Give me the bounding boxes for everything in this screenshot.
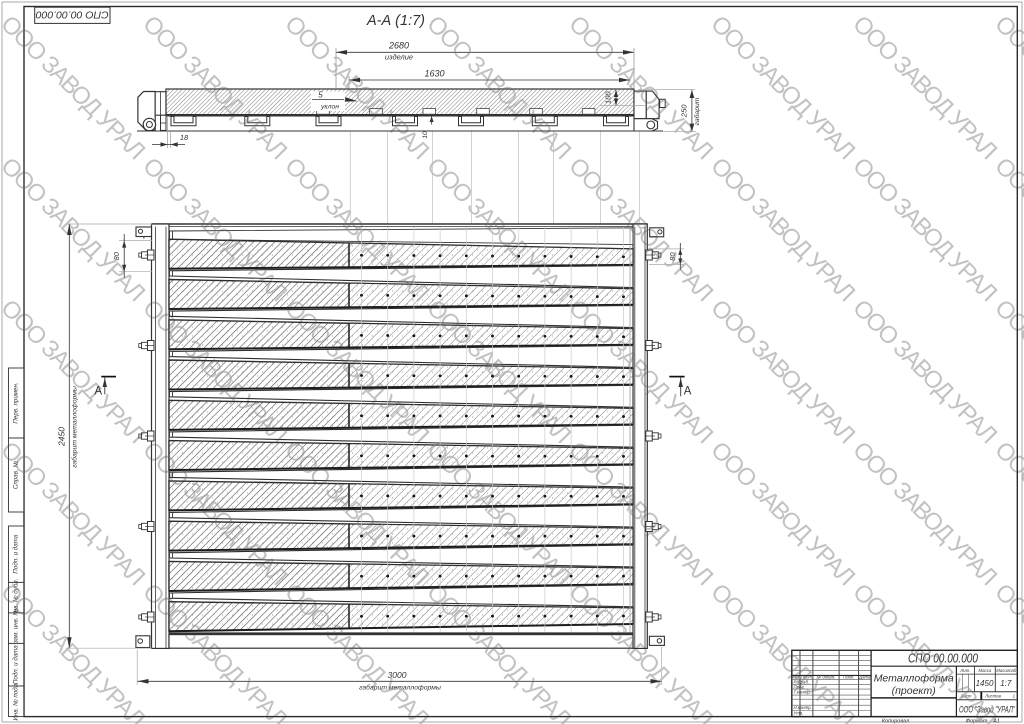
- svg-text:ООО ЗАВОД УРАЛ: ООО ЗАВОД УРАЛ: [421, 294, 575, 448]
- svg-text:ООО ЗАВОД УРАЛ: ООО ЗАВОД УРАЛ: [705, 152, 859, 306]
- svg-text:ООО ЗАВОД УРАЛ: ООО ЗАВОД УРАЛ: [421, 436, 575, 590]
- svg-text:ООО ЗАВОД УРАЛ: ООО ЗАВОД УРАЛ: [563, 152, 717, 306]
- svg-text:ООО ЗАВОД УРАЛ: ООО ЗАВОД УРАЛ: [137, 436, 291, 590]
- svg-text:ООО ЗАВОД УРАЛ: ООО ЗАВОД УРАЛ: [847, 152, 1001, 306]
- svg-text:ООО ЗАВОД УРАЛ: ООО ЗАВОД УРАЛ: [989, 720, 1024, 724]
- svg-text:ООО ЗАВОД УРАЛ: ООО ЗАВОД УРАЛ: [137, 10, 291, 164]
- svg-text:ООО ЗАВОД УРАЛ: ООО ЗАВОД УРАЛ: [279, 436, 433, 590]
- svg-text:ООО ЗАВОД УРАЛ: ООО ЗАВОД УРАЛ: [279, 578, 433, 724]
- svg-text:ООО ЗАВОД УРАЛ: ООО ЗАВОД УРАЛ: [705, 294, 859, 448]
- svg-text:ООО ЗАВОД УРАЛ: ООО ЗАВОД УРАЛ: [0, 578, 149, 724]
- svg-text:ООО ЗАВОД УРАЛ: ООО ЗАВОД УРАЛ: [279, 10, 433, 164]
- svg-text:ООО ЗАВОД УРАЛ: ООО ЗАВОД УРАЛ: [705, 10, 859, 164]
- svg-text:ООО ЗАВОД УРАЛ: ООО ЗАВОД УРАЛ: [0, 152, 149, 306]
- svg-text:ООО ЗАВОД УРАЛ: ООО ЗАВОД УРАЛ: [563, 436, 717, 590]
- svg-text:ООО ЗАВОД УРАЛ: ООО ЗАВОД УРАЛ: [137, 294, 291, 448]
- svg-text:ООО ЗАВОД УРАЛ: ООО ЗАВОД УРАЛ: [563, 578, 717, 724]
- svg-text:ООО ЗАВОД УРАЛ: ООО ЗАВОД УРАЛ: [989, 578, 1024, 724]
- svg-text:ООО ЗАВОД УРАЛ: ООО ЗАВОД УРАЛ: [279, 294, 433, 448]
- svg-text:ООО ЗАВОД УРАЛ: ООО ЗАВОД УРАЛ: [0, 436, 149, 590]
- svg-text:ООО ЗАВОД УРАЛ: ООО ЗАВОД УРАЛ: [847, 294, 1001, 448]
- svg-text:ООО ЗАВОД УРАЛ: ООО ЗАВОД УРАЛ: [0, 10, 149, 164]
- svg-text:ООО ЗАВОД УРАЛ: ООО ЗАВОД УРАЛ: [563, 10, 717, 164]
- svg-text:ООО ЗАВОД УРАЛ: ООО ЗАВОД УРАЛ: [421, 152, 575, 306]
- svg-text:ООО ЗАВОД УРАЛ: ООО ЗАВОД УРАЛ: [563, 294, 717, 448]
- svg-text:ООО ЗАВОД УРАЛ: ООО ЗАВОД УРАЛ: [137, 152, 291, 306]
- svg-text:ООО ЗАВОД УРАЛ: ООО ЗАВОД УРАЛ: [705, 578, 859, 724]
- svg-text:ООО ЗАВОД УРАЛ: ООО ЗАВОД УРАЛ: [847, 578, 1001, 724]
- svg-text:ООО ЗАВОД УРАЛ: ООО ЗАВОД УРАЛ: [279, 152, 433, 306]
- svg-text:ООО ЗАВОД УРАЛ: ООО ЗАВОД УРАЛ: [0, 294, 149, 448]
- svg-text:ООО ЗАВОД УРАЛ: ООО ЗАВОД УРАЛ: [705, 436, 859, 590]
- svg-text:ООО ЗАВОД УРАЛ: ООО ЗАВОД УРАЛ: [421, 10, 575, 164]
- svg-text:ООО ЗАВОД УРАЛ: ООО ЗАВОД УРАЛ: [421, 578, 575, 724]
- svg-text:ООО ЗАВОД УРАЛ: ООО ЗАВОД УРАЛ: [847, 436, 1001, 590]
- svg-text:ООО ЗАВОД УРАЛ: ООО ЗАВОД УРАЛ: [137, 578, 291, 724]
- svg-text:ООО ЗАВОД УРАЛ: ООО ЗАВОД УРАЛ: [847, 10, 1001, 164]
